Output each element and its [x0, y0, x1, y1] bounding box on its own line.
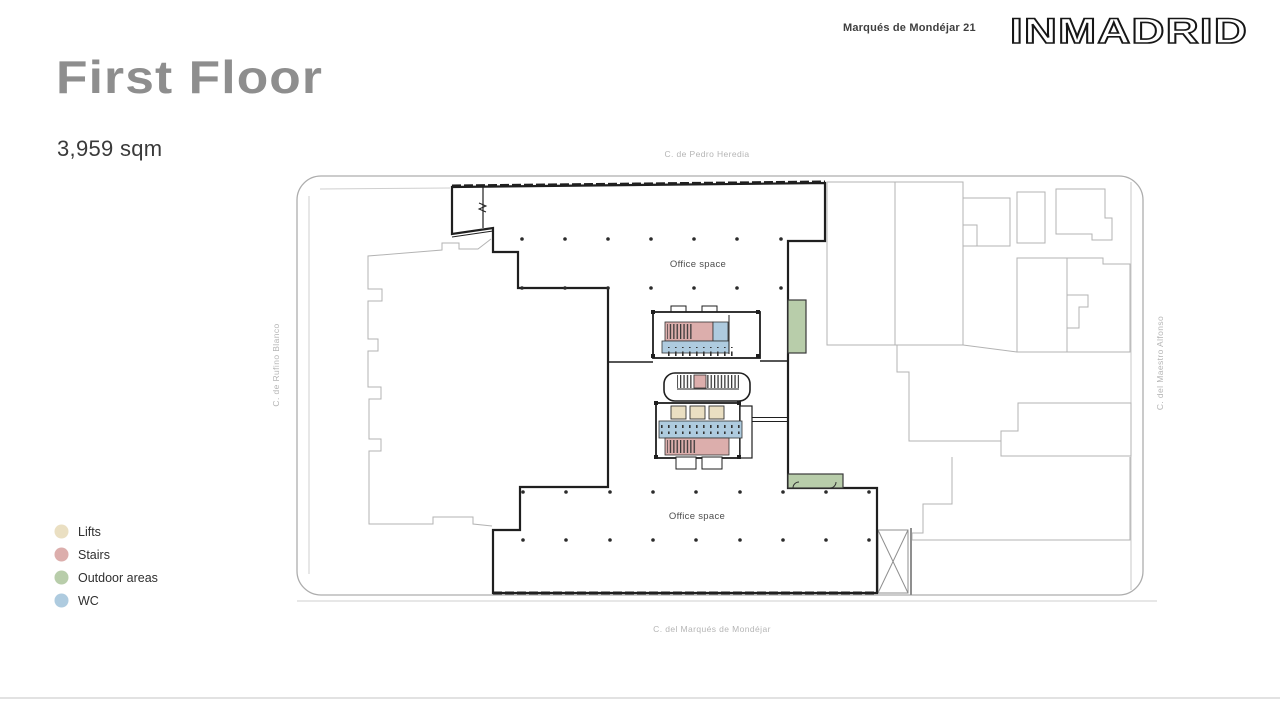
- adjacent-building-d: [1056, 189, 1112, 240]
- adjacent-building-g1: [897, 345, 1131, 456]
- page: Marqués de Mondéjar 21 INMADRID First Fl…: [0, 0, 1280, 705]
- lift-3: [709, 406, 724, 419]
- ramp-cross: [878, 528, 911, 595]
- core-lower: [654, 401, 752, 469]
- office-label-top: Office space: [670, 259, 726, 270]
- floor-plan: Office space Office space C. de Pedro He…: [0, 0, 1280, 705]
- core-stair-mid: [664, 373, 750, 401]
- adjacent-building-left: [368, 239, 492, 526]
- mid-stair-landing: [694, 375, 706, 388]
- lift-1: [671, 406, 686, 419]
- outdoor-areas: [788, 300, 843, 488]
- street-label-bottom: C. del Marqués de Mondéjar: [653, 624, 771, 634]
- street-label-left: C. de Rufino Blanco: [271, 323, 281, 406]
- lift-2: [690, 406, 705, 419]
- street-label-top: C. de Pedro Heredia: [664, 149, 749, 159]
- office-label-bottom: Office space: [669, 511, 725, 522]
- adjacent-building-g2: [912, 457, 1130, 540]
- street-label-right: C. del Maestro Alfonso: [1155, 316, 1165, 410]
- adjacent-building-e: [1017, 258, 1130, 352]
- upper-wc-small: [713, 322, 728, 341]
- adjacent-building-b: [963, 198, 1010, 246]
- core-upper: [651, 306, 760, 358]
- adjacent-building-c: [1017, 192, 1045, 243]
- outdoor-terrace-right: [788, 300, 806, 353]
